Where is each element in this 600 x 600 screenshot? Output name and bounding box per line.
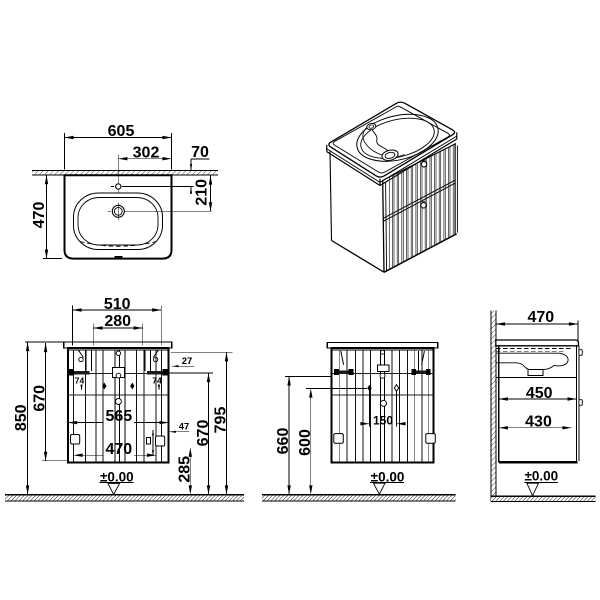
svg-text:280: 280: [104, 313, 131, 330]
svg-text:47: 47: [179, 422, 190, 433]
svg-text:605: 605: [108, 123, 135, 140]
svg-text:74: 74: [75, 376, 85, 386]
svg-text:±0.00: ±0.00: [524, 469, 558, 484]
svg-text:285: 285: [177, 456, 194, 483]
svg-text:27: 27: [182, 356, 193, 367]
svg-text:70: 70: [191, 144, 209, 161]
svg-text:450: 450: [526, 385, 553, 402]
svg-text:850: 850: [13, 404, 30, 431]
svg-text:565: 565: [105, 408, 132, 425]
svg-text:795: 795: [213, 407, 230, 434]
svg-text:302: 302: [133, 144, 160, 161]
svg-text:600: 600: [297, 429, 314, 456]
svg-text:660: 660: [275, 428, 292, 455]
svg-text:210: 210: [194, 179, 211, 206]
svg-text:74: 74: [152, 376, 162, 386]
svg-text:510: 510: [104, 296, 131, 313]
svg-text:430: 430: [525, 413, 552, 430]
svg-text:470: 470: [31, 202, 48, 229]
svg-text:470: 470: [527, 309, 554, 326]
svg-text:150: 150: [373, 413, 393, 427]
svg-text:670: 670: [32, 385, 49, 412]
svg-text:670: 670: [195, 420, 212, 447]
svg-text:470: 470: [105, 441, 132, 458]
